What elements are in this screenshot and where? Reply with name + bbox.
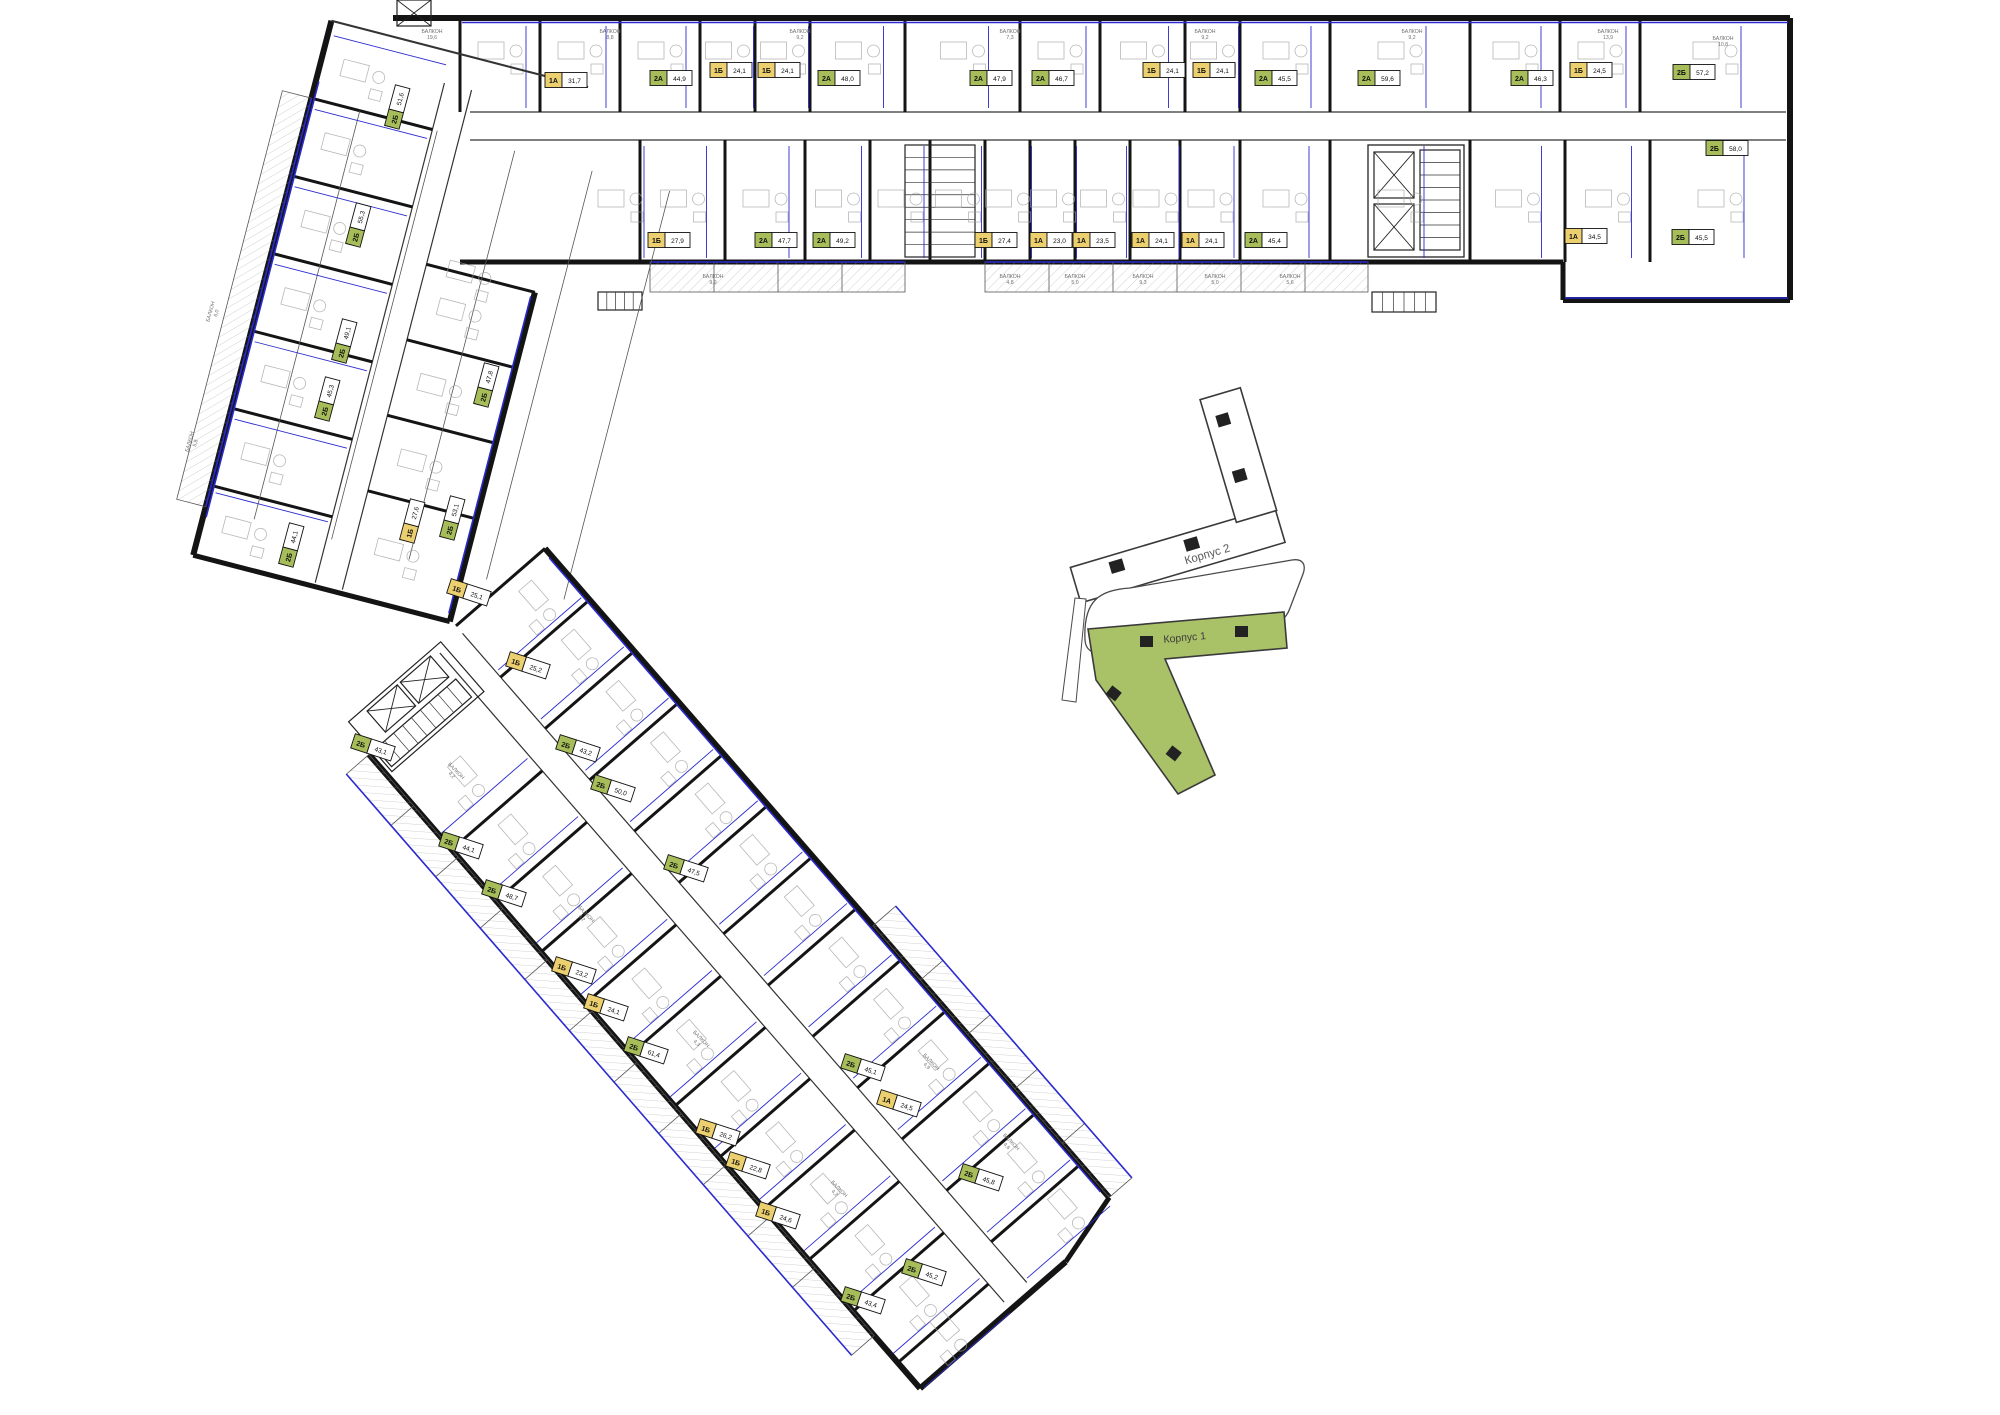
unit-label: 1А23,5	[1073, 233, 1115, 248]
unit-type-label: 1Б	[1147, 68, 1156, 75]
balcony-label: БАЛКОН4,2	[825, 1180, 848, 1204]
unit-type-label: 2А	[1036, 76, 1045, 83]
unit-label: 1Б27,4	[975, 233, 1017, 248]
unit-label: 1Б24,1	[1193, 63, 1235, 78]
unit-area-label: 27,4	[998, 238, 1011, 245]
balcony-label: БАЛКОН13,9	[1597, 29, 1618, 41]
unit-label: 2Б45,3	[315, 377, 340, 421]
balcony-area-text: 9,2	[1408, 35, 1415, 41]
unit-label: 2Б58,0	[1706, 141, 1748, 156]
unit-label: 2А59,6	[1358, 71, 1400, 86]
unit-type-label: 1Б	[652, 238, 661, 245]
balcony-label: БАЛКОН4,3	[687, 1030, 710, 1054]
unit-type-label: 2А	[1249, 238, 1258, 245]
balcony-area-text: 5,6	[1286, 280, 1293, 286]
top-wing	[393, 0, 1790, 312]
unit-type-label: 1Б	[1574, 68, 1583, 75]
unit-labels-layer: 1А31,72А44,91Б24,11Б24,12А48,02А47,92А46…	[279, 63, 1748, 1314]
balcony-label: БАЛКОН19,6	[421, 29, 442, 41]
unit-area-label: 47,9	[993, 76, 1006, 83]
unit-area-label: 31,7	[568, 78, 581, 85]
unit-label: 1Б25,2	[506, 652, 551, 679]
unit-area-label: 59,6	[1381, 76, 1394, 83]
unit-area-label: 34,5	[1588, 234, 1601, 241]
balcony-area-text: 5,0	[1071, 280, 1078, 286]
unit-label: 1Б24,1	[710, 63, 752, 78]
unit-label: 2Б45,8	[959, 1164, 1004, 1191]
unit-type-label: 2А	[1362, 76, 1371, 83]
unit-label: 2Б44,1	[279, 523, 304, 567]
unit-label: 1А24,1	[1132, 233, 1174, 248]
balcony-area-text: 6,0	[213, 309, 221, 318]
unit-label: 2Б50,0	[591, 775, 636, 802]
unit-label: 1А31,7	[545, 73, 587, 88]
unit-area-label: 24,1	[1166, 68, 1179, 75]
unit-type-label: 1А	[1077, 238, 1086, 245]
unit-label: 2А46,7	[1032, 71, 1074, 86]
unit-type-label: 1Б	[714, 68, 723, 75]
balcony-label: БАЛКОН9,2	[1194, 29, 1215, 41]
unit-area-label: 48,0	[841, 76, 854, 83]
balcony-area-text: 5,0	[1211, 280, 1218, 286]
unit-area-label: 45,5	[1278, 76, 1291, 83]
balcony-area-text: 9,2	[1201, 35, 1208, 41]
balcony-area-text: 9,9	[709, 280, 716, 286]
key-plan-ramp	[1062, 598, 1086, 702]
unit-area-label: 24,1	[1205, 238, 1218, 245]
unit-area-label: 24,1	[1216, 68, 1229, 75]
unit-type-label: 1А	[1569, 234, 1578, 241]
unit-label: 2А47,9	[970, 71, 1012, 86]
unit-area-label: 23,5	[1096, 238, 1109, 245]
unit-type-label: 2А	[1515, 76, 1524, 83]
unit-area-label: 27,9	[671, 238, 684, 245]
unit-label: 2А47,7	[755, 233, 797, 248]
unit-area-label: 45,5	[1695, 235, 1708, 242]
unit-type-label: 1А	[1136, 238, 1145, 245]
key-plan: Корпус 2 Корпус 1	[1035, 388, 1304, 794]
balcony-area-text: 10,8	[1718, 42, 1728, 48]
unit-label: 2Б53,1	[440, 496, 465, 540]
unit-label: 1Б24,1	[1143, 63, 1185, 78]
left-wing	[164, 13, 689, 648]
unit-type-label: 1А	[549, 78, 558, 85]
balcony-label: БАЛКОН9,2	[789, 29, 810, 41]
unit-area-label: 24,1	[1155, 238, 1168, 245]
unit-area-label: 58,0	[1729, 146, 1742, 153]
unit-area-label: 49,2	[836, 238, 849, 245]
unit-area-label: 24,5	[1593, 68, 1606, 75]
unit-label: 2Б45,5	[1672, 230, 1714, 245]
unit-area-label: 44,9	[673, 76, 686, 83]
unit-label: 1Б27,6	[400, 499, 425, 543]
unit-area-label: 24,1	[781, 68, 794, 75]
balcony-label: БАЛКОН6,0	[205, 301, 222, 325]
unit-type-label: 2А	[817, 238, 826, 245]
unit-label: 2Б55,3	[346, 203, 371, 247]
unit-label: 2Б45,2	[902, 1259, 947, 1286]
unit-label: 2А48,0	[818, 71, 860, 86]
unit-area-label: 46,7	[1055, 76, 1068, 83]
balcony-label: БАЛКОН4,9	[917, 1053, 940, 1077]
unit-area-label: 24,1	[733, 68, 746, 75]
bottom-wing	[320, 529, 1146, 1410]
unit-label: 1Б27,9	[648, 233, 690, 248]
unit-type-label: 2Б	[1710, 146, 1719, 153]
balcony-area-text: 9,2	[796, 35, 803, 41]
balcony-label: БАЛКОН7,3	[999, 29, 1020, 41]
unit-type-label: 1А	[1034, 238, 1043, 245]
unit-area-label: 47,7	[778, 238, 791, 245]
unit-label: 2А45,4	[1245, 233, 1287, 248]
balcony-area-text: 9,3	[1139, 280, 1146, 286]
balcony-label: БАЛКОН9,2	[1401, 29, 1422, 41]
unit-type-label: 2А	[822, 76, 831, 83]
unit-label: 2Б43,2	[556, 735, 601, 762]
unit-type-label: 2А	[654, 76, 663, 83]
unit-type-label: 1Б	[762, 68, 771, 75]
balcony-area-text: 4,8	[1006, 280, 1013, 286]
balcony-area-text: 8,8	[606, 35, 613, 41]
unit-area-label: 23,0	[1053, 238, 1066, 245]
unit-type-label: 2А	[974, 76, 983, 83]
balcony-area-text: 13,9	[1603, 35, 1613, 41]
unit-type-label: 2А	[759, 238, 768, 245]
balcony-area-text: 7,3	[1006, 35, 1013, 41]
unit-label: 1А34,5	[1565, 229, 1607, 244]
unit-label: 1А24,1	[1182, 233, 1224, 248]
unit-label: 2Б57,2	[1673, 65, 1715, 80]
unit-type-label: 2А	[1259, 76, 1268, 83]
unit-label: 1А23,0	[1030, 233, 1072, 248]
unit-label: 1Б24,1	[758, 63, 800, 78]
unit-label: 1Б24,5	[1570, 63, 1612, 78]
unit-type-label: 1Б	[979, 238, 988, 245]
unit-type-label: 1Б	[1197, 68, 1206, 75]
floor-plan-page: Корпус 2 Корпус 1 1А31,72А44,91Б24,11Б24…	[0, 0, 2000, 1415]
unit-type-label: 1А	[1186, 238, 1195, 245]
unit-type-label: 2Б	[1677, 70, 1686, 77]
unit-area-label: 45,4	[1268, 238, 1281, 245]
balcony-label: БАЛКОН4,2	[442, 762, 465, 786]
unit-area-label: 46,3	[1534, 76, 1547, 83]
unit-label: 1А24,5	[877, 1090, 922, 1117]
unit-label: 2А46,3	[1511, 71, 1553, 86]
floor-plan-canvas: Корпус 2 Корпус 1 1А31,72А44,91Б24,11Б24…	[0, 0, 2000, 1415]
unit-area-label: 57,2	[1696, 70, 1709, 77]
balcony-label: БАЛКОН8,8	[599, 29, 620, 41]
unit-label: 2А45,5	[1255, 71, 1297, 86]
unit-type-label: 2Б	[1676, 235, 1685, 242]
balcony-area-text: 19,6	[427, 35, 437, 41]
unit-label: 2А49,2	[813, 233, 855, 248]
unit-label: 2А44,9	[650, 71, 692, 86]
unit-label: 2Б47,8	[474, 363, 499, 407]
